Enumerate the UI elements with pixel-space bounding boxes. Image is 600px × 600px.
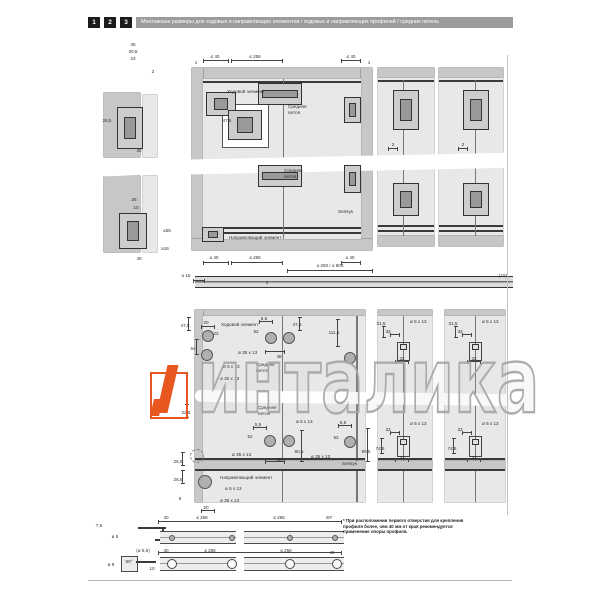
footer-divider: [88, 580, 512, 581]
front-view-bottom-track-1: [203, 227, 361, 229]
dimension-label: 10: [133, 205, 138, 210]
drill-hole: [198, 475, 212, 489]
runner-hardware: [228, 110, 262, 140]
runner-hardware: [202, 227, 224, 242]
component-label: петля: [288, 110, 300, 115]
hinge-hardware: [393, 90, 419, 130]
dimension-label: 40*: [326, 515, 333, 520]
dimension-label: 47,5: [181, 323, 190, 328]
dimension-label: 31,5: [377, 321, 386, 326]
mounting-bracket: [469, 436, 482, 457]
hinge-hardware: [258, 83, 302, 105]
drill-hole: [344, 436, 356, 448]
dimension-label: 31,5: [449, 321, 458, 326]
hinge-hardware: [117, 107, 143, 149]
dimension-line: [201, 326, 215, 327]
component-label: Средняя: [284, 168, 303, 173]
dimension-label: 90,5: [362, 449, 371, 454]
component-label: петля: [284, 174, 296, 179]
component-label: ø 5 x 13: [225, 486, 242, 491]
dimension-label: ≤ 256: [249, 54, 260, 59]
dimension-label: ≤ 256: [273, 515, 284, 520]
dimension-line: [341, 60, 361, 61]
hinge-hardware: [463, 90, 489, 130]
dimension-label: ≤ 40: [210, 255, 219, 260]
drawing-area: * При расположении первого отверстия для…: [0, 0, 600, 600]
mounting-bracket: [397, 436, 410, 457]
dimension-label: ø 9: [108, 562, 115, 567]
dimension-line: [203, 60, 229, 61]
dimension-line: [193, 280, 205, 281]
dimension-label: 47,5: [223, 118, 232, 123]
dimension-label: (15): [499, 273, 507, 278]
dimension-line: [301, 430, 302, 462]
dimension-label: 74,5: [376, 446, 385, 451]
lower-panelC-band: [378, 461, 432, 469]
lower-panelD-btrack2: [445, 469, 505, 471]
dimension-label: ≤ 40: [347, 54, 356, 59]
front-view-top-rail: [192, 68, 372, 79]
dimension-label: 2: [152, 69, 155, 74]
dimension-label: 26,5: [174, 459, 183, 464]
dimension-line: [203, 262, 229, 263]
profile1-bar-b: [244, 531, 344, 544]
drill-hole: [283, 435, 295, 447]
front-view-bottom-track-2: [203, 232, 361, 234]
dimension-line: [341, 262, 361, 263]
dimension-label: 36: [130, 42, 135, 47]
drill-hole: [169, 535, 175, 541]
footnote-line: применение опоры профиля.: [343, 529, 515, 535]
dimension-label: 1: [368, 60, 371, 65]
horizontal-section-strip: [195, 276, 513, 288]
hinge-hardware: [463, 183, 489, 216]
dimension-line: [458, 148, 468, 149]
component-label: Ходовой элемент: [221, 322, 258, 327]
dimension-label: 74,5: [448, 446, 457, 451]
component-label: Ходовой элемент: [227, 89, 264, 94]
dimension-label: 2: [266, 280, 269, 285]
dimension-label: 5: [179, 496, 182, 501]
dimension-label: ≤ 256: [204, 548, 215, 553]
optional-drill-hole: [190, 449, 204, 463]
dimension-label: ≥ 250 / ≤ 600: [317, 263, 344, 268]
dimension-label: 48: [276, 457, 281, 462]
dimension-label: 40: [329, 550, 334, 555]
dimension-label: 23: [130, 56, 135, 61]
dimension-label: ≤ 256: [249, 255, 260, 260]
dimension-line: [158, 521, 342, 522]
dimension-line: [231, 262, 283, 263]
right-panel2-btrack1: [439, 225, 503, 227]
component-label: ø 5 x 13: [410, 319, 427, 324]
hinge-hardware: [344, 97, 361, 123]
dimension-line: [201, 510, 215, 511]
right-panel2-top-rail: [439, 68, 503, 78]
component-label: Sensys: [338, 209, 353, 214]
dimension-label: 20: [203, 320, 208, 325]
hinge-hardware: [119, 213, 147, 249]
right-panel2-track: [439, 80, 503, 82]
dimension-label: 52: [247, 434, 252, 439]
drill-hole: [264, 435, 276, 447]
dimension-label: 26,5: [103, 118, 112, 123]
right-panel1-bottom-rail: [378, 236, 434, 246]
dimension-line: [388, 148, 398, 149]
lower-view-bottom-band: [195, 461, 365, 469]
right-panel2-btrack2: [439, 230, 503, 232]
dimension-label: 5,5: [261, 316, 267, 321]
profile2-cross-section-arm: [136, 561, 156, 563]
component-label: ø 35 x 13: [232, 452, 251, 457]
dimension-label: 40: [136, 148, 141, 153]
dimension-label: 20: [203, 505, 208, 510]
dimension-label: ≤ 40: [211, 54, 220, 59]
right-panel2-bottom-rail: [439, 236, 503, 246]
component-label: Направляющий элемент: [220, 475, 272, 480]
catalog-page: 123 Монтажные размеры для ходовых и напр…: [0, 0, 600, 600]
dimension-label: ≤ 15: [182, 273, 191, 278]
dimension-line: [265, 461, 285, 462]
dimension-label: 32: [471, 455, 476, 460]
dimension-line: [158, 552, 342, 553]
right-panel1-top-rail: [378, 68, 434, 78]
component-label: ø 5 x 13: [482, 319, 499, 324]
footnote: * При расположении первого отверстия для…: [343, 518, 515, 535]
dimension-label: 26,5: [174, 477, 183, 482]
dimension-label: 52: [333, 435, 338, 440]
dimension-label: 32: [399, 455, 404, 460]
dimension-label: 90°: [126, 559, 133, 564]
dimension-label: 64: [190, 346, 195, 351]
dimension-label: ≤ 256: [280, 548, 291, 553]
section-door-strip-upper: [143, 95, 157, 157]
dimension-label: ø 5: [112, 534, 119, 539]
component-label: Средняя: [288, 104, 307, 109]
dimension-line: [231, 60, 283, 61]
drill-hole: [332, 559, 342, 569]
drill-hole: [167, 559, 177, 569]
component-label: Направляющий элемент: [229, 235, 281, 240]
dimension-label: 40: [136, 256, 141, 261]
hinge-hardware: [393, 183, 419, 216]
drill-hole: [229, 535, 235, 541]
dimension-label: 2: [392, 142, 395, 147]
dimension-label: 1: [195, 60, 198, 65]
lower-panelC-btrack2: [378, 469, 432, 471]
lower-panelD-band: [445, 461, 505, 469]
dimension-label: ≤ 256: [196, 515, 207, 520]
dimension-label: ≥16: [161, 246, 169, 251]
page-edge-line: [507, 55, 508, 515]
dimension-label: 7,6: [96, 523, 102, 528]
dimension-label: ≤55: [163, 228, 171, 233]
component-label: ø 35 x 13: [220, 498, 239, 503]
dimension-label: ≤ 40: [346, 255, 355, 260]
drill-hole: [227, 559, 237, 569]
dimension-label: 47,6: [293, 322, 302, 327]
dimension-line: [287, 270, 373, 271]
right-panel1-btrack2: [378, 230, 434, 232]
drill-hole: [285, 559, 295, 569]
right-panel1-track: [378, 80, 434, 82]
drill-hole: [332, 535, 338, 541]
dimension-label: 40: [163, 548, 168, 553]
component-label: ø 35 x 13: [311, 454, 330, 459]
dimension-line: [259, 321, 273, 322]
hinge-hardware: [344, 165, 361, 193]
dimension-label: 40: [163, 515, 168, 520]
dimension-label: 26: [131, 197, 136, 202]
lower-view-btrack2: [195, 469, 365, 471]
right-panel1-btrack1: [378, 225, 434, 227]
drill-hole: [287, 535, 293, 541]
dimension-label: 10: [149, 566, 154, 571]
component-label: Sensys: [342, 461, 357, 466]
dimension-label: 90,5: [295, 449, 304, 454]
watermark-text: инталика: [197, 337, 539, 427]
dimension-label: (ø 5,6): [136, 548, 150, 553]
dimension-label: 30,5: [129, 49, 138, 54]
dimension-label: 2: [462, 142, 465, 147]
